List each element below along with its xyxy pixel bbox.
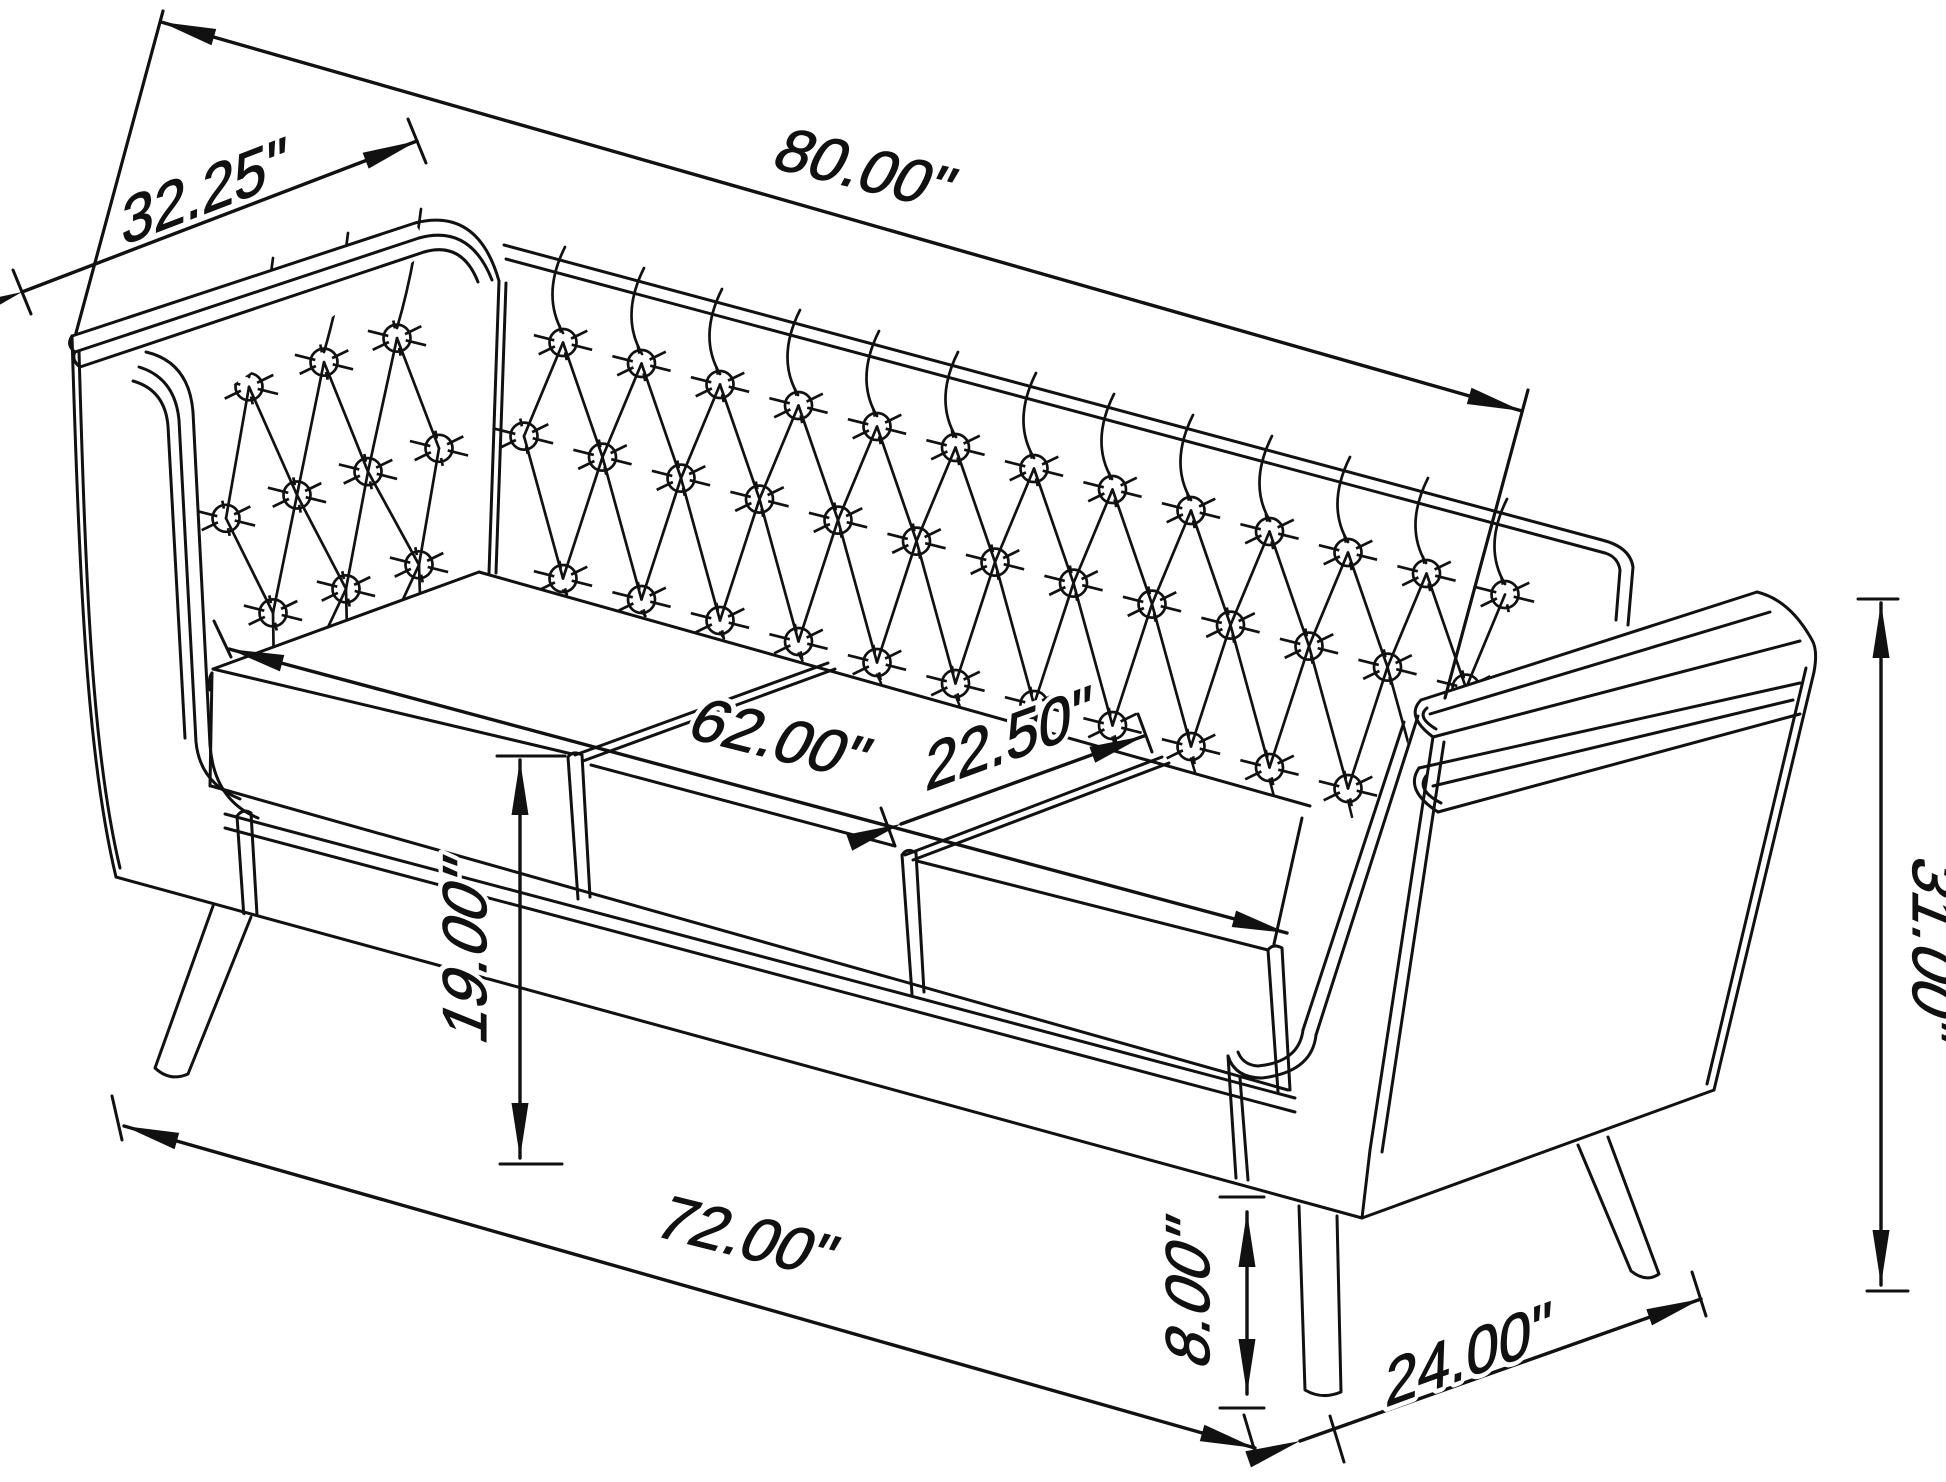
svg-text:31.00": 31.00" — [1900, 848, 1946, 1053]
svg-text:19.00": 19.00" — [430, 847, 499, 1052]
svg-text:8.00": 8.00" — [1153, 1206, 1222, 1377]
